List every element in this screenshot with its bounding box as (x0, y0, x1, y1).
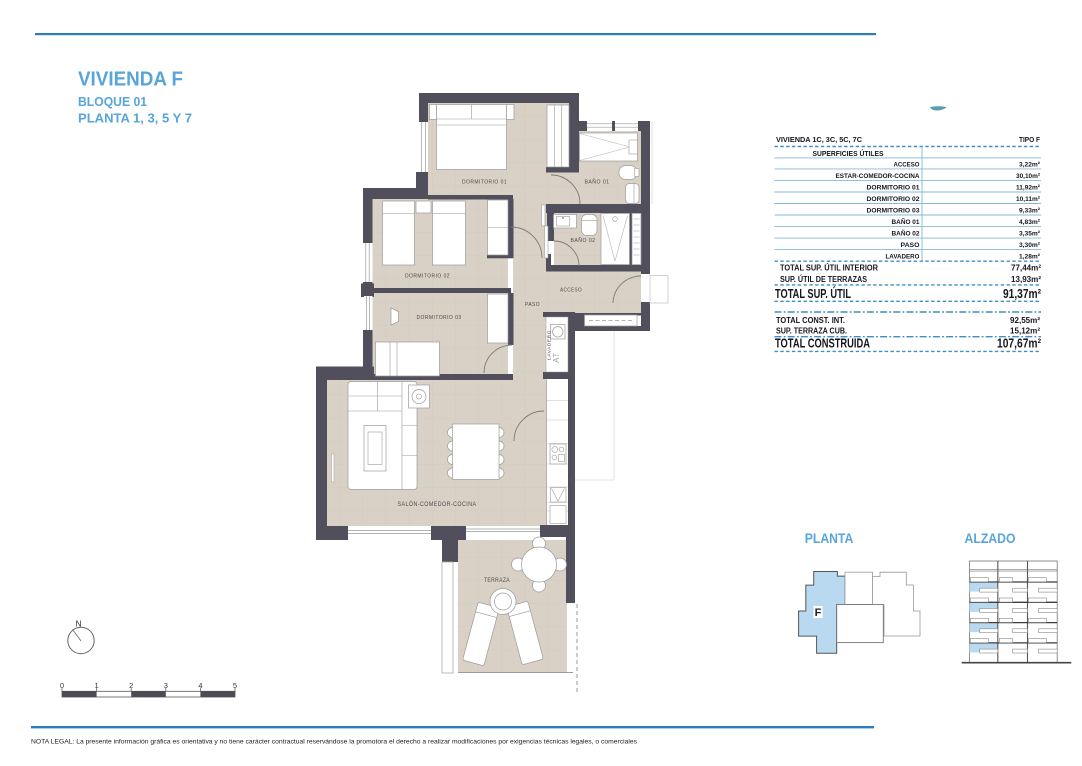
svg-text:NOTA LEGAL: La presente inform: NOTA LEGAL: La presente información gráf… (31, 739, 637, 746)
svg-text:ACCESO: ACCESO (894, 162, 920, 169)
svg-text:107,67m²: 107,67m² (997, 336, 1042, 351)
svg-text:91,37m²: 91,37m² (1003, 286, 1042, 301)
svg-text:77,44m²: 77,44m² (1011, 263, 1041, 272)
svg-text:92,55m²: 92,55m² (1010, 316, 1040, 325)
svg-text:3,35m²: 3,35m² (1019, 231, 1041, 238)
svg-text:TOTAL SUP. ÚTIL INTERIOR: TOTAL SUP. ÚTIL INTERIOR (780, 263, 878, 272)
svg-text:LAVADERO: LAVADERO (547, 330, 552, 360)
svg-text:4,83m²: 4,83m² (1019, 219, 1041, 226)
svg-text:SALÓN-COMEDOR-COCINA: SALÓN-COMEDOR-COCINA (398, 501, 477, 508)
svg-text:TOTAL CONSTRUIDA: TOTAL CONSTRUIDA (775, 336, 870, 351)
svg-text:15,12m²: 15,12m² (1010, 326, 1040, 335)
svg-text:BAÑO 01: BAÑO 01 (585, 179, 610, 186)
svg-text:BAÑO 02: BAÑO 02 (571, 237, 596, 244)
svg-text:3,30m²: 3,30m² (1019, 242, 1041, 249)
svg-text:PASO: PASO (901, 242, 920, 249)
svg-text:3,22m²: 3,22m² (1019, 162, 1041, 169)
svg-text:DORMITORIO 02: DORMITORIO 02 (867, 196, 920, 203)
svg-text:VIVIENDA F: VIVIENDA F (78, 69, 183, 91)
svg-text:TIPO F: TIPO F (1019, 135, 1040, 144)
svg-text:PLANTA: PLANTA (805, 531, 854, 546)
svg-text:BAÑO 02: BAÑO 02 (892, 229, 920, 238)
svg-text:DORMITORIO 03: DORMITORIO 03 (417, 315, 462, 321)
svg-text:TOTAL SUP. ÚTIL: TOTAL SUP. ÚTIL (775, 286, 851, 301)
svg-text:BAÑO 01: BAÑO 01 (892, 217, 920, 226)
svg-text:DORMITORIO 02: DORMITORIO 02 (405, 274, 450, 280)
svg-text:DORMITORIO 01: DORMITORIO 01 (462, 180, 507, 186)
svg-text:13,93m²: 13,93m² (1011, 275, 1041, 284)
svg-text:N: N (76, 619, 82, 629)
svg-text:LAVADERO: LAVADERO (886, 254, 920, 261)
svg-text:AT: AT (552, 352, 561, 363)
svg-text:DORMITORIO 01: DORMITORIO 01 (867, 185, 920, 192)
svg-text:TOTAL CONST. INT.: TOTAL CONST. INT. (776, 316, 845, 325)
svg-text:SUPERFICIES ÚTILES: SUPERFICIES ÚTILES (813, 149, 884, 158)
svg-text:F: F (815, 607, 822, 619)
svg-text:30,10m²: 30,10m² (1016, 173, 1041, 180)
svg-text:ALZADO: ALZADO (965, 531, 1016, 546)
svg-text:ACCESO: ACCESO (560, 288, 582, 294)
svg-text:TERRAZA: TERRAZA (484, 578, 510, 584)
svg-text:BLOQUE 01: BLOQUE 01 (78, 95, 147, 109)
svg-text:ESTAR-COMEDOR-COCINA: ESTAR-COMEDOR-COCINA (836, 173, 920, 180)
svg-text:9,33m²: 9,33m² (1019, 208, 1041, 215)
svg-text:1,28m²: 1,28m² (1019, 254, 1041, 261)
svg-text:PLANTA 1, 3, 5 Y 7: PLANTA 1, 3, 5 Y 7 (78, 112, 192, 126)
svg-text:11,92m²: 11,92m² (1016, 185, 1041, 192)
svg-text:PASO: PASO (525, 302, 540, 308)
svg-text:10,11m²: 10,11m² (1016, 196, 1041, 203)
svg-text:VIVIENDA 1C, 3C, 5C, 7C: VIVIENDA 1C, 3C, 5C, 7C (776, 135, 863, 144)
svg-text:DORMITORIO 03: DORMITORIO 03 (867, 208, 920, 215)
svg-text:SUP. ÚTIL DE TERRAZAS: SUP. ÚTIL DE TERRAZAS (780, 275, 868, 284)
svg-text:SUP. TERRAZA CUB.: SUP. TERRAZA CUB. (776, 326, 847, 335)
